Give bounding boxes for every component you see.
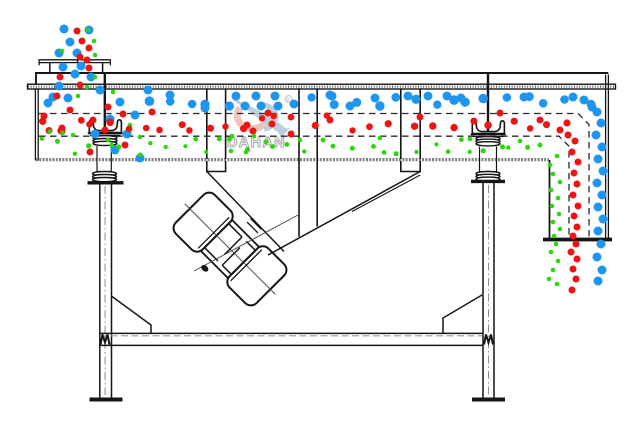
svg-text:DAHAN: DAHAN: [227, 135, 286, 151]
